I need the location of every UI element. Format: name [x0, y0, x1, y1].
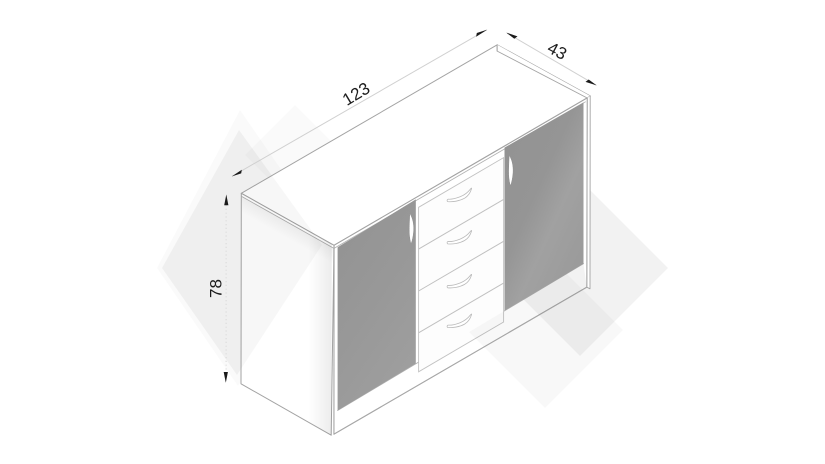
svg-text:78: 78	[207, 279, 226, 298]
svg-text:43: 43	[544, 38, 570, 64]
svg-text:123: 123	[339, 79, 373, 110]
